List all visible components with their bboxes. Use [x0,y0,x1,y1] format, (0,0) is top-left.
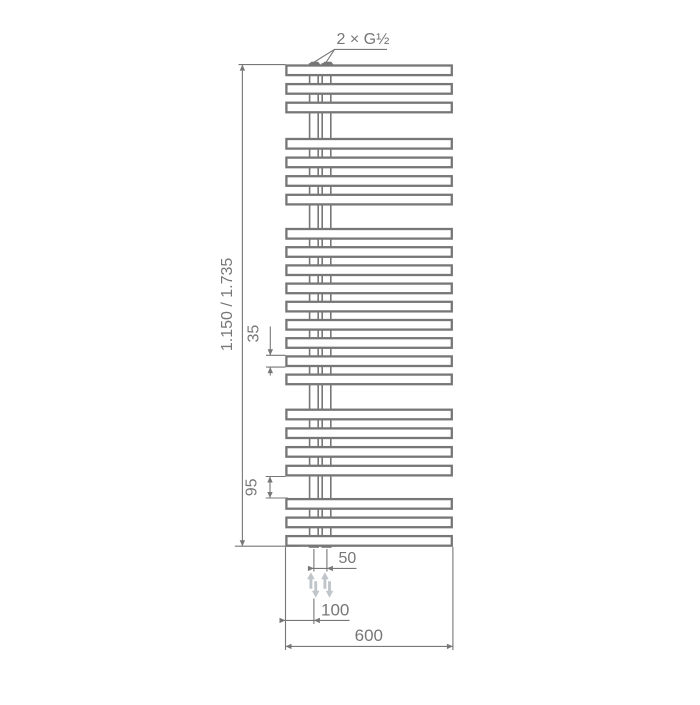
svg-text:2 × G½: 2 × G½ [337,31,390,48]
svg-text:600: 600 [355,626,383,645]
svg-text:100: 100 [321,601,349,620]
svg-text:50: 50 [339,550,357,567]
svg-text:1.150 / 1.735: 1.150 / 1.735 [219,258,236,352]
svg-text:95: 95 [244,478,261,496]
svg-text:35: 35 [245,325,262,343]
